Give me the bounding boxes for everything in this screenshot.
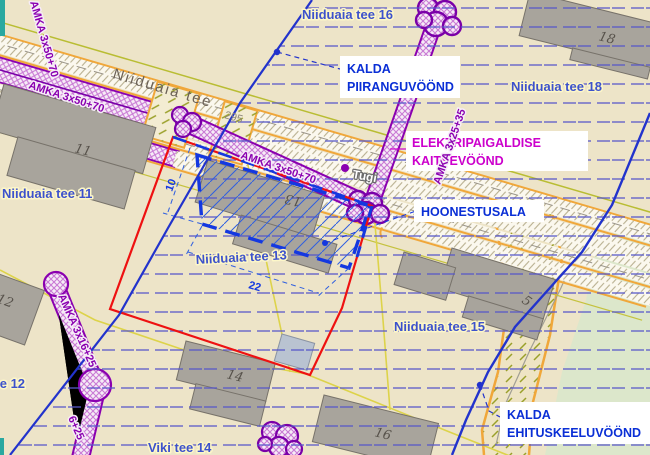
label-elektripaigaldise-line1: ELEKTRIPAIGALDISE — [412, 136, 541, 150]
plot-label-18: Niiduaia tee 18 — [511, 79, 602, 94]
label-kalda-piiranguvoond-line2: PIIRANGUVÖÖND — [347, 79, 454, 94]
label-kalda-ehituskeeluvoond-line1: KALDA — [507, 408, 551, 422]
map-canvas: 10 22 KALDA PIIRANGUVÖÖND ELEKTRIPAIGALD… — [0, 0, 650, 455]
label-kalda-ehituskeeluvoond-line2: EHITUSKEELUVÖÖND — [507, 425, 641, 440]
detail-plan-map: 10 22 KALDA PIIRANGUVÖÖND ELEKTRIPAIGALD… — [0, 0, 650, 455]
teal-edge-mark-top — [0, 0, 5, 36]
plot-label-11: Niiduaia tee 11 — [2, 186, 92, 201]
plot-label-15: Niiduaia tee 15 — [394, 319, 485, 334]
teal-edge-mark-bottom — [0, 438, 4, 455]
plot-label-viki-14: Viki tee 14 — [148, 440, 212, 455]
plot-label-12: Niiduaia tee 12 — [0, 376, 25, 391]
plot-label-16: Niiduaia tee 16 — [302, 7, 393, 22]
label-elektripaigaldise-line2: KAITSEVÖÖND — [412, 153, 504, 168]
label-hoonestusala: HOONESTUSALA — [421, 205, 526, 219]
label-kalda-piiranguvoond-line1: KALDA — [347, 62, 391, 76]
